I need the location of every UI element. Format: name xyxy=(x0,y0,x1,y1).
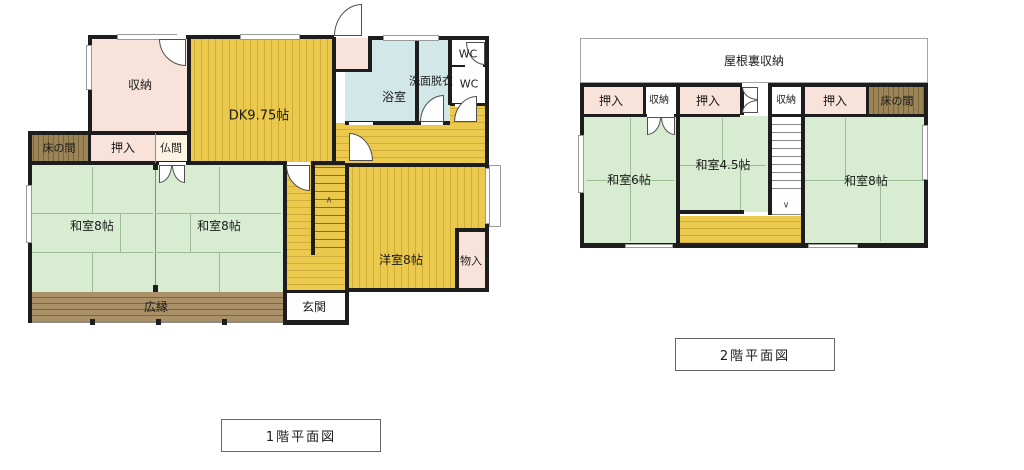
label-washitsu-8: 和室8帖 xyxy=(844,175,888,187)
post xyxy=(153,163,158,170)
wall xyxy=(768,114,928,117)
tatami-line xyxy=(219,167,220,213)
window xyxy=(625,244,673,248)
label-genkan: 玄関 xyxy=(302,301,326,313)
post xyxy=(156,319,161,325)
label-hiroen: 広縁 xyxy=(144,301,168,313)
post xyxy=(222,319,227,325)
tatami-line xyxy=(30,213,153,214)
window xyxy=(86,45,92,90)
caption-floor2: 2階平面図 xyxy=(675,338,835,371)
window xyxy=(26,185,32,243)
post xyxy=(153,285,158,292)
label-storage-2f-left: 収納 xyxy=(649,96,669,106)
tatami-line xyxy=(880,180,881,241)
wall xyxy=(455,228,459,292)
wall xyxy=(643,85,646,115)
label-closet-1f: 押入 xyxy=(111,142,135,154)
wall xyxy=(801,85,805,245)
door-arc-entrance xyxy=(334,4,362,36)
wall xyxy=(88,131,91,165)
label-closet-2f-center: 押入 xyxy=(696,95,720,107)
tatami-line xyxy=(190,213,191,252)
tatami-line xyxy=(845,118,846,180)
tatami-line xyxy=(92,252,93,292)
label-washitsu-right: 和室8帖 xyxy=(197,220,241,232)
wall xyxy=(768,85,772,215)
label-tokonoma-1f: 床の間 xyxy=(43,143,76,154)
label-youshitsu: 洋室8帖 xyxy=(379,254,423,266)
label-wc-lower: WC xyxy=(460,79,479,90)
entry-alcove xyxy=(334,38,368,71)
wall xyxy=(283,320,349,325)
window xyxy=(578,135,584,193)
wall xyxy=(448,40,452,105)
tatami-line xyxy=(630,118,631,180)
label-washitsu-45: 和室4.5帖 xyxy=(695,159,750,171)
door-opening xyxy=(349,122,373,125)
wall xyxy=(345,163,487,167)
label-dk: DK9.75帖 xyxy=(229,110,289,123)
door-opening xyxy=(465,65,483,67)
wall xyxy=(28,131,187,135)
partition-line xyxy=(155,163,156,292)
partition-line xyxy=(155,133,156,163)
window xyxy=(240,34,300,40)
label-butsuma: 仏間 xyxy=(160,143,182,154)
tatami-line xyxy=(219,252,220,292)
label-attic-storage: 屋根裏収納 xyxy=(724,55,784,67)
tatami-line xyxy=(120,213,121,252)
label-washroom: 洗面脱衣 xyxy=(409,76,453,87)
wall xyxy=(368,38,372,72)
partition-line xyxy=(772,214,801,215)
wall xyxy=(311,165,315,255)
flooring-strip-2f xyxy=(678,216,801,243)
tatami-line xyxy=(630,180,631,241)
stairs-2f xyxy=(772,116,801,196)
window xyxy=(808,244,858,248)
label-wc-upper: WC xyxy=(459,49,478,60)
wall xyxy=(283,290,347,293)
stair-up-mark: ∧ xyxy=(326,197,333,206)
wall xyxy=(332,69,372,72)
caption-floor2-text: 2階平面図 xyxy=(720,345,790,364)
label-tokonoma-2f: 床の間 xyxy=(881,96,914,107)
label-monoire: 物入 xyxy=(460,256,482,267)
window xyxy=(383,35,439,41)
bay-window xyxy=(489,165,501,227)
tatami-line xyxy=(157,213,281,214)
label-closet-2f-right: 押入 xyxy=(823,95,847,107)
stairs-1f xyxy=(315,167,345,253)
caption-floor1-text: 1階平面図 xyxy=(266,426,336,445)
door-arc xyxy=(742,87,758,100)
wall xyxy=(332,37,336,165)
label-washitsu-6: 和室6帖 xyxy=(607,174,651,186)
wall xyxy=(485,36,489,292)
wall xyxy=(345,163,349,322)
wall xyxy=(345,288,487,292)
stair-down-mark: ∨ xyxy=(783,202,790,211)
door-opening xyxy=(421,122,443,125)
label-closet-2f-left: 押入 xyxy=(599,95,623,107)
tatami-line xyxy=(92,167,93,213)
label-storage-1f: 収納 xyxy=(128,79,152,91)
wall xyxy=(676,85,680,245)
wall xyxy=(678,210,744,214)
room-dk xyxy=(187,37,334,165)
label-bathroom: 浴室 xyxy=(382,91,406,103)
post xyxy=(90,319,95,325)
window xyxy=(922,125,928,180)
wall xyxy=(455,228,487,232)
caption-floor1: 1階平面図 xyxy=(221,419,381,452)
wall xyxy=(866,85,869,115)
label-storage-2f-right: 収納 xyxy=(776,96,796,106)
door-arc xyxy=(742,100,758,113)
label-washitsu-left: 和室8帖 xyxy=(70,220,114,232)
wall xyxy=(283,161,287,322)
wall xyxy=(311,161,345,165)
wall xyxy=(187,37,191,165)
